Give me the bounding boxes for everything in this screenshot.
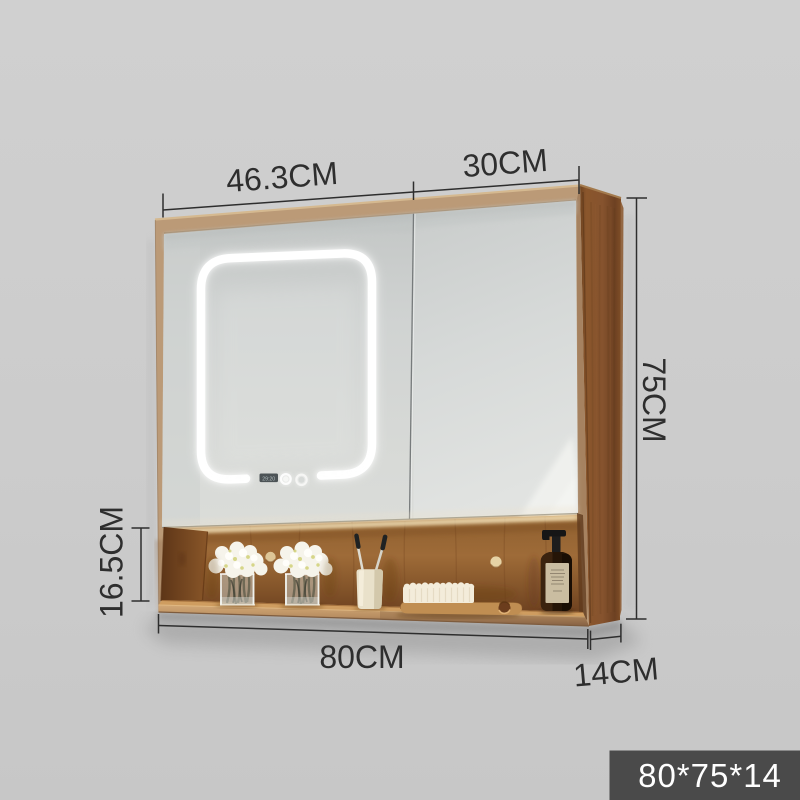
svg-text:29:20: 29:20	[262, 476, 275, 482]
svg-text:80CM: 80CM	[319, 639, 404, 675]
svg-text:16.5CM: 16.5CM	[94, 506, 130, 618]
svg-text:80*75*14: 80*75*14	[638, 757, 782, 794]
svg-text:75CM: 75CM	[636, 357, 672, 442]
svg-text:14CM: 14CM	[572, 650, 660, 693]
svg-text:30CM: 30CM	[461, 142, 549, 184]
